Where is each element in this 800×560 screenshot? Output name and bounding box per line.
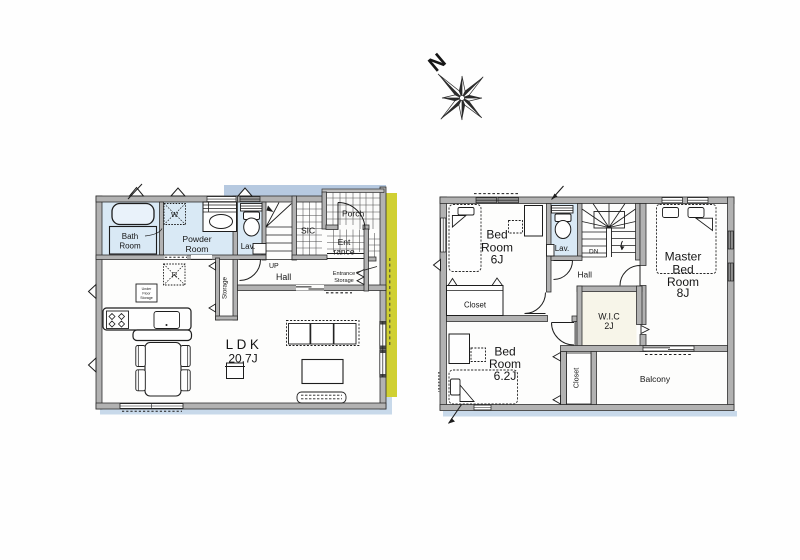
svg-text:Room: Room: [119, 242, 141, 251]
svg-text:Bath: Bath: [122, 232, 138, 241]
svg-text:8J: 8J: [677, 286, 690, 300]
svg-text:Closet: Closet: [572, 368, 581, 388]
svg-text:Lav.: Lav.: [555, 244, 570, 253]
svg-text:Balcony: Balcony: [640, 374, 671, 384]
svg-text:2J: 2J: [604, 321, 613, 331]
svg-text:Entrance: Entrance: [333, 271, 355, 277]
svg-text:Floor: Floor: [142, 292, 151, 296]
svg-text:UP: UP: [269, 263, 279, 270]
svg-text:Lav.: Lav.: [241, 242, 256, 251]
svg-text:Master: Master: [665, 250, 702, 264]
svg-text:Hall: Hall: [578, 270, 593, 280]
svg-text:Powder: Powder: [182, 234, 211, 244]
svg-text:Closet: Closet: [464, 301, 487, 310]
svg-text:Under: Under: [142, 287, 153, 291]
svg-text:6J: 6J: [491, 253, 504, 267]
svg-text:Bed: Bed: [486, 228, 507, 242]
svg-text:6.2J: 6.2J: [494, 369, 517, 383]
svg-text:rance: rance: [333, 247, 355, 257]
svg-text:R: R: [172, 271, 178, 280]
svg-text:Porch: Porch: [342, 209, 364, 219]
svg-text:Storage: Storage: [222, 276, 229, 299]
svg-text:LDK: LDK: [226, 337, 263, 352]
svg-text:DN: DN: [589, 249, 599, 256]
svg-text:W.I.C: W.I.C: [598, 312, 620, 322]
svg-text:Storage: Storage: [334, 278, 354, 284]
svg-text:Storage: Storage: [140, 296, 153, 300]
svg-text:Room: Room: [186, 244, 209, 254]
svg-text:SIC: SIC: [301, 226, 315, 236]
svg-text:Ent: Ent: [338, 237, 351, 247]
svg-text:Hall: Hall: [276, 272, 291, 282]
svg-text:W: W: [171, 210, 179, 219]
